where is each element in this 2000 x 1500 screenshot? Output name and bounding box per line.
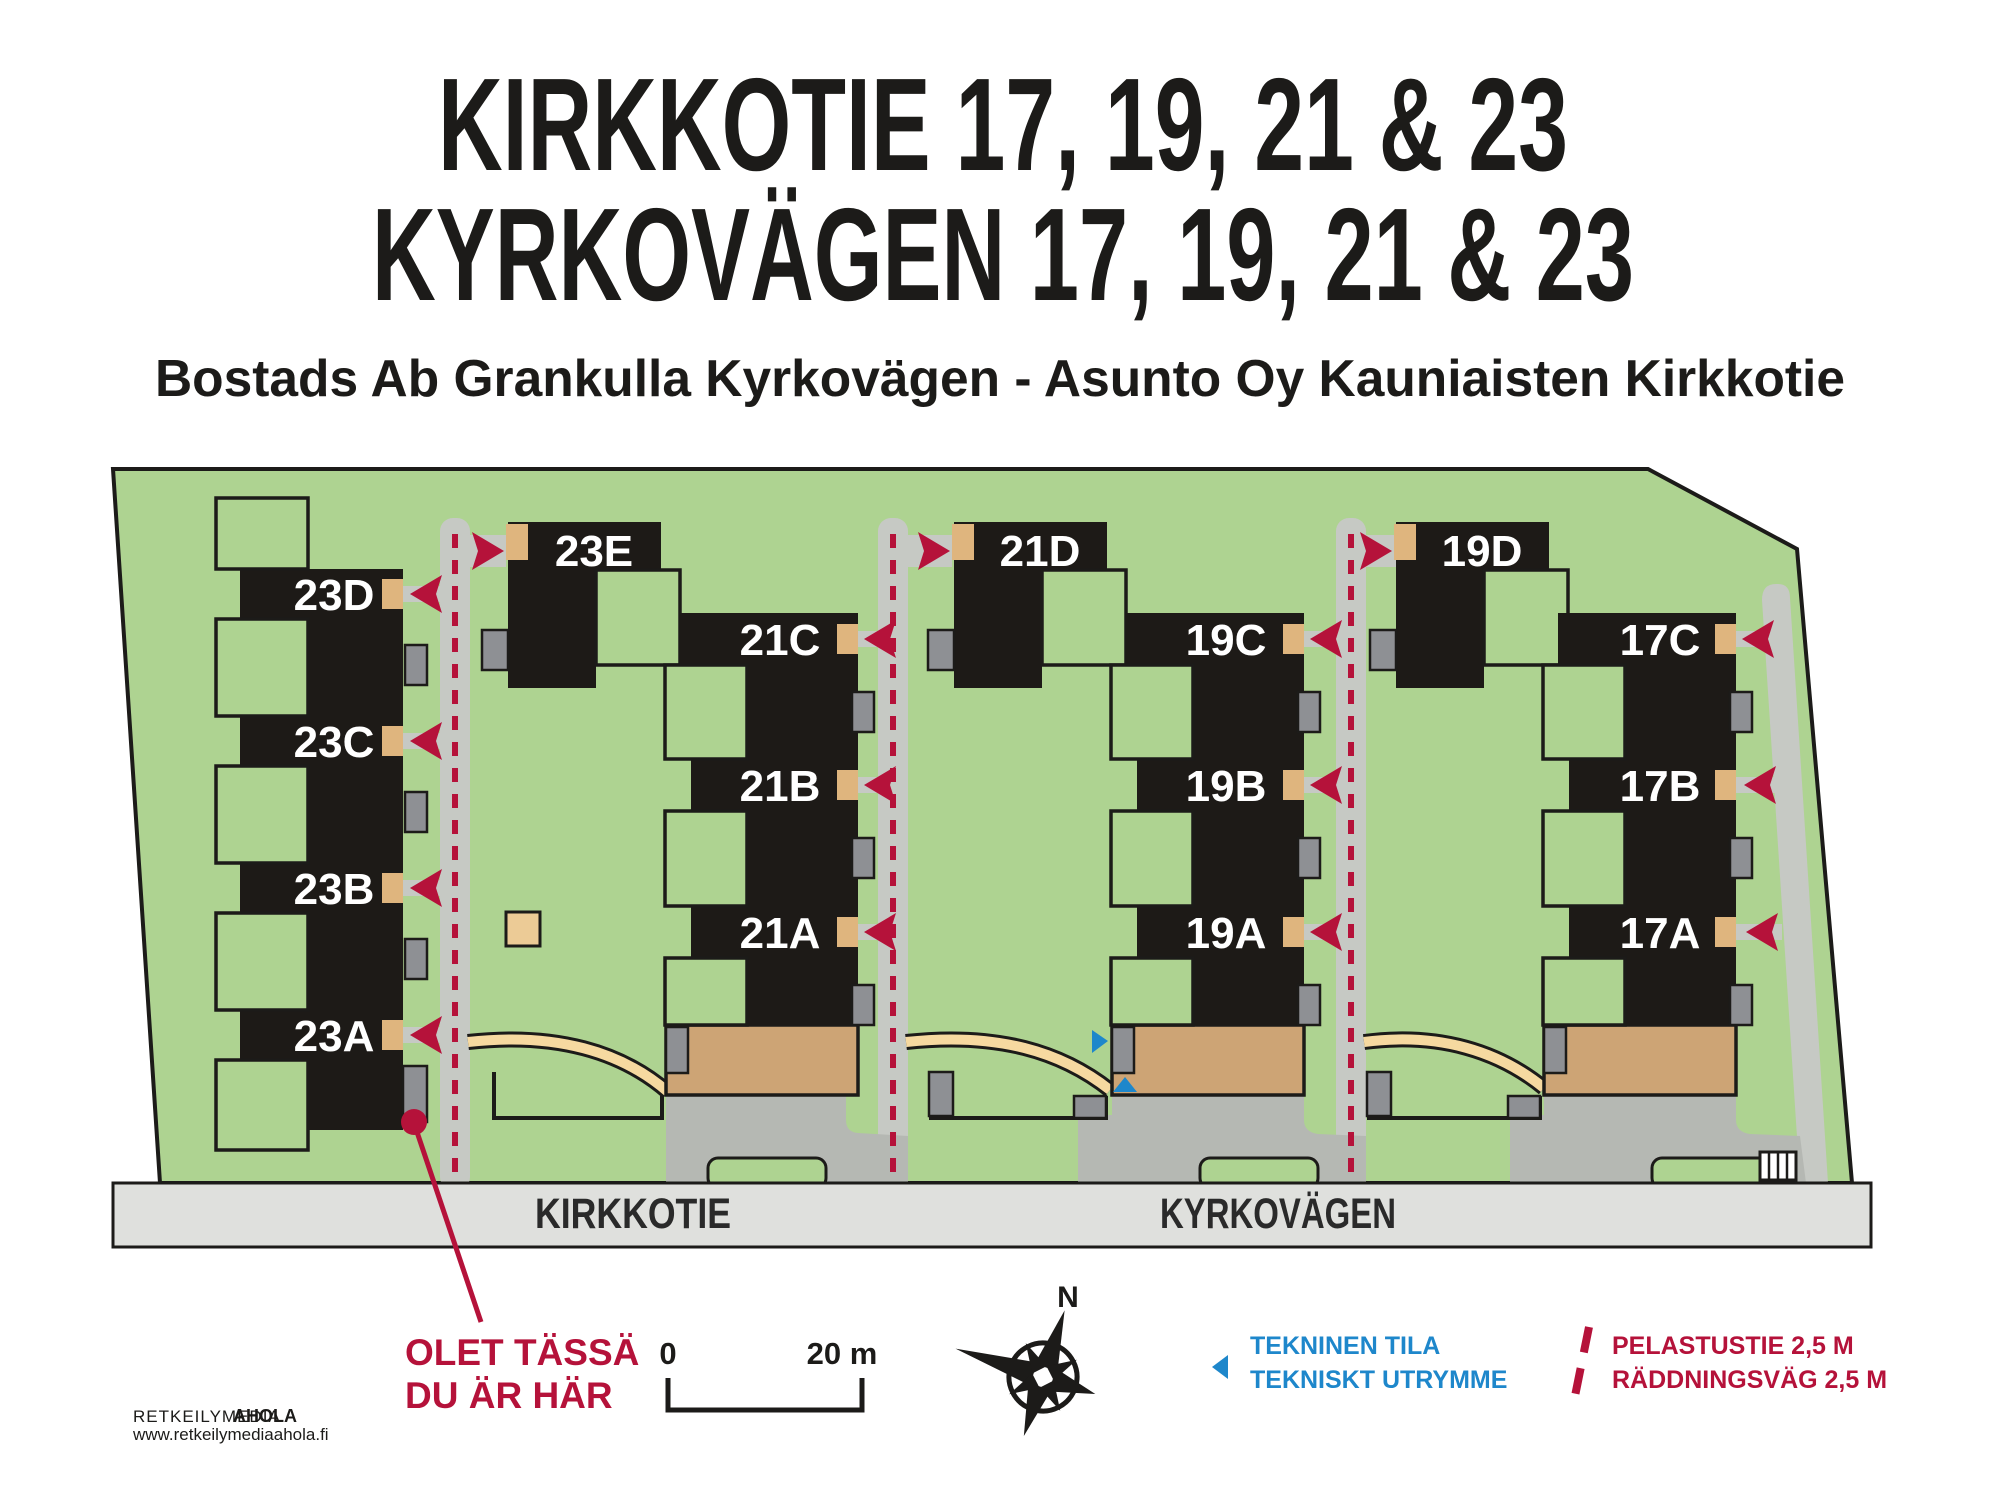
legend-technical-sv: TEKNISKT UTRYMME [1250,1366,1507,1394]
page-subtitle: Bostads Ab Grankulla Kyrkovägen - Asunto… [155,350,1845,408]
technical-space [928,630,954,670]
technical-space [852,985,874,1025]
footer-brand-bold: AHOLA [233,1406,297,1426]
legend-rescue-dash-icon [1575,1327,1589,1396]
entrance-17B [1715,770,1736,800]
courtyard [1042,570,1126,665]
entrance-21C [837,624,858,654]
legend-rescue-fi: PELASTUSTIE 2,5 M [1612,1332,1854,1360]
technical-space [1730,838,1752,878]
technical-space [1112,1027,1134,1073]
header: KIRKKOTIE 17, 19, 21 & 23 KYRKOVÄGEN 17,… [155,51,1845,408]
parking-areas [666,1025,1736,1095]
technical-space [1544,1027,1566,1073]
unit-label: 23E [555,527,633,576]
courtyard [1543,958,1625,1025]
courtyard [1111,665,1193,759]
technical-space [405,645,427,685]
technical-space [1370,630,1396,670]
entrance-23B [382,873,403,903]
entrance-19D [1394,524,1416,560]
courtyard [1111,811,1193,906]
you-are-here-label-sv: DU ÄR HÄR [405,1375,613,1416]
footer-url: www.retkeilymediaahola.fi [132,1425,329,1444]
parking-area [1544,1025,1736,1095]
courtyard [1111,958,1193,1025]
courtyard [1484,570,1568,665]
street-band: KIRKKOTIE KYRKOVÄGEN [113,1183,1871,1247]
entrance-23A [382,1020,403,1050]
unit-label: 17A [1620,909,1701,958]
courtyard [216,913,308,1010]
legend-technical-arrow-icon [1212,1355,1228,1379]
courtyard [216,766,308,863]
page-title-line1: KIRKKOTIE 17, 19, 21 & 23 [438,51,1568,198]
unit-label: 19B [1186,762,1267,811]
outbuilding [506,912,540,946]
unit-label: 21B [740,762,821,811]
unit-label: 21C [740,616,821,665]
unit-label: 23D [294,571,375,620]
unit-label: 21D [1000,527,1081,576]
entrance-19C [1283,624,1304,654]
entrance-17C [1715,624,1736,654]
technical-space [666,1027,688,1073]
technical-space [1298,838,1320,878]
unit-label: 17C [1620,616,1701,665]
scale-start-label: 0 [659,1336,676,1371]
entrance-23E [506,524,528,560]
technical-space [852,692,874,732]
entrance-21A [837,917,858,947]
technical-space [1730,692,1752,732]
courtyard [1543,665,1625,759]
technical-space [1298,985,1320,1025]
entrance-19A [1283,917,1304,947]
unit-label: 23A [294,1012,375,1061]
technical-space [405,792,427,832]
scale-bar: 0 20 m [659,1336,877,1410]
courtyard [216,498,308,569]
entrance-17A [1715,917,1736,947]
entrance-23D [382,579,403,609]
footer: RETKEILYMEDIA AHOLA www.retkeilymediaaho… [132,1406,329,1444]
you-are-here-label-fi: OLET TÄSSÄ [405,1332,639,1373]
courtyard [665,958,747,1025]
compass: N [936,1281,1117,1453]
legend: TEKNINEN TILA TEKNISKT UTRYMME PELASTUST… [1212,1327,1887,1396]
technical-space [482,630,508,670]
driveway-aprons [666,1092,1806,1188]
technical-space [852,838,874,878]
unit-label: 23B [294,865,375,914]
street-label-kirkkotie: KIRKKOTIE [535,1190,731,1238]
courtyard [665,665,747,759]
unit-label: 17B [1620,762,1701,811]
entrance-21D [952,524,974,560]
technical-space [405,939,427,979]
compass-north-label: N [1057,1281,1079,1314]
stairs-icon [1760,1152,1796,1180]
courtyard [1543,811,1625,906]
site-map: KIRKKOTIE 17, 19, 21 & 23 KYRKOVÄGEN 17,… [0,0,2000,1500]
entrance-23C [382,726,403,756]
scale-end-label: 20 m [807,1336,878,1371]
courtyard [216,1060,308,1150]
unit-label: 21A [740,909,821,958]
courtyard [596,570,680,665]
unit-label: 19A [1186,909,1267,958]
courtyard [665,811,747,906]
legend-technical-fi: TEKNINEN TILA [1250,1332,1440,1360]
street-label-kyrkovagen: KYRKOVÄGEN [1160,1190,1396,1238]
site-map-poster: KIRKKOTIE 17, 19, 21 & 23 KYRKOVÄGEN 17,… [0,0,2000,1500]
scale-bar-bracket [668,1378,862,1410]
technical-space [1298,692,1320,732]
entrance-19B [1283,770,1304,800]
entrance-21B [837,770,858,800]
compass-rose-icon [936,1282,1117,1453]
you-are-here-dot [401,1109,427,1135]
legend-rescue-sv: RÄDDNINGSVÄG 2,5 M [1612,1366,1887,1394]
page-title-line2: KYRKOVÄGEN 17, 19, 21 & 23 [372,181,1634,328]
parking-area [666,1025,858,1095]
unit-label: 23C [294,718,375,767]
unit-label: 19D [1442,527,1523,576]
unit-label: 19C [1186,616,1267,665]
technical-space [1730,985,1752,1025]
courtyard [216,619,308,716]
parking-area [1112,1025,1304,1095]
